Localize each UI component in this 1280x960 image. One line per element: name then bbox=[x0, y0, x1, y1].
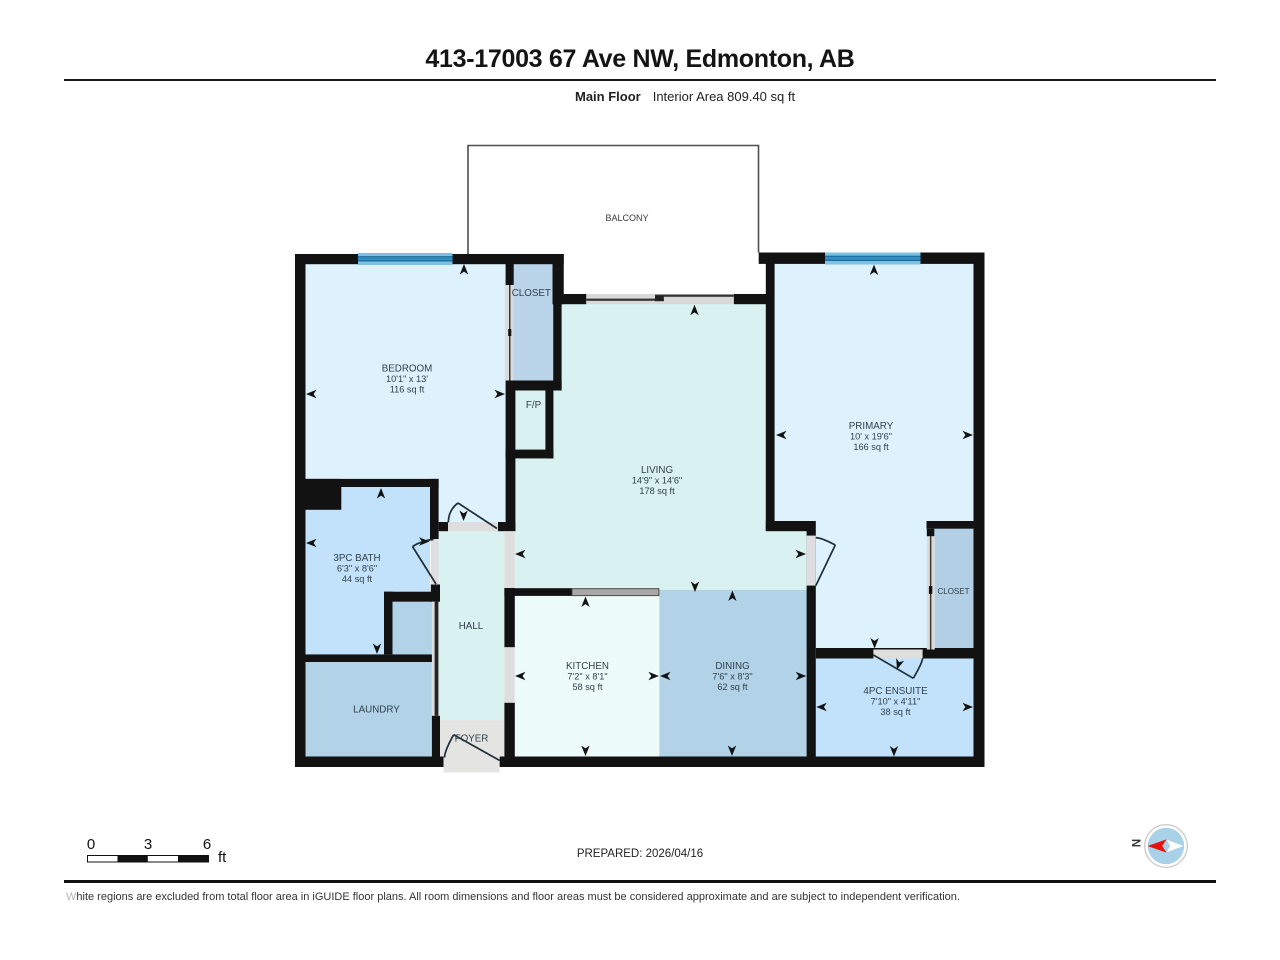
svg-text:7'6" x 8'3": 7'6" x 8'3" bbox=[712, 672, 752, 682]
svg-text:58 sq ft: 58 sq ft bbox=[572, 682, 603, 692]
svg-text:KITCHEN: KITCHEN bbox=[566, 661, 609, 672]
svg-text:116 sq ft: 116 sq ft bbox=[390, 385, 425, 395]
svg-text:62 sq ft: 62 sq ft bbox=[717, 682, 748, 692]
svg-text:DINING: DINING bbox=[715, 661, 749, 672]
svg-text:14'9" x 14'6": 14'9" x 14'6" bbox=[632, 476, 682, 486]
svg-text:44 sq ft: 44 sq ft bbox=[342, 574, 373, 584]
svg-text:178 sq ft: 178 sq ft bbox=[639, 486, 675, 496]
svg-text:PRIMARY: PRIMARY bbox=[849, 421, 894, 432]
svg-text:6'3" x 8'6": 6'3" x 8'6" bbox=[337, 564, 377, 574]
svg-text:HALL: HALL bbox=[459, 621, 484, 632]
svg-text:4PC ENSUITE: 4PC ENSUITE bbox=[863, 686, 928, 697]
svg-text:BALCONY: BALCONY bbox=[605, 213, 648, 223]
svg-text:LAUNDRY: LAUNDRY bbox=[353, 705, 400, 716]
svg-text:FOYER: FOYER bbox=[455, 734, 489, 745]
svg-text:7'10" x 4'11": 7'10" x 4'11" bbox=[871, 697, 921, 707]
svg-text:166 sq ft: 166 sq ft bbox=[853, 442, 889, 452]
svg-text:F/P: F/P bbox=[526, 400, 542, 411]
svg-text:38 sq ft: 38 sq ft bbox=[880, 707, 911, 717]
svg-text:10'1" x 13': 10'1" x 13' bbox=[386, 374, 428, 384]
svg-text:10' x 19'6": 10' x 19'6" bbox=[850, 432, 892, 442]
svg-text:3PC BATH: 3PC BATH bbox=[333, 553, 380, 564]
svg-text:LIVING: LIVING bbox=[641, 465, 673, 476]
svg-text:BEDROOM: BEDROOM bbox=[382, 364, 433, 375]
svg-text:CLOSET: CLOSET bbox=[937, 587, 969, 596]
svg-text:CLOSET: CLOSET bbox=[512, 288, 551, 299]
svg-text:7'2" x 8'1": 7'2" x 8'1" bbox=[567, 672, 607, 682]
